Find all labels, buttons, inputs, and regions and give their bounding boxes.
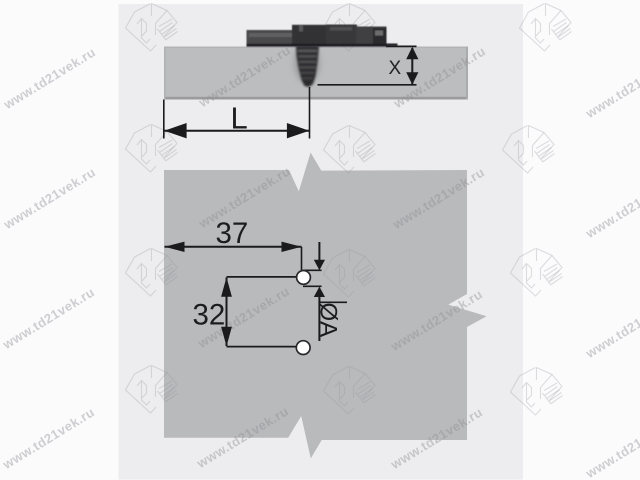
svg-text:32: 32	[193, 299, 226, 332]
svg-text:37: 37	[216, 217, 249, 250]
svg-text:X: X	[388, 58, 401, 79]
svg-text:ØA: ØA	[315, 303, 342, 338]
svg-text:L: L	[231, 101, 248, 136]
